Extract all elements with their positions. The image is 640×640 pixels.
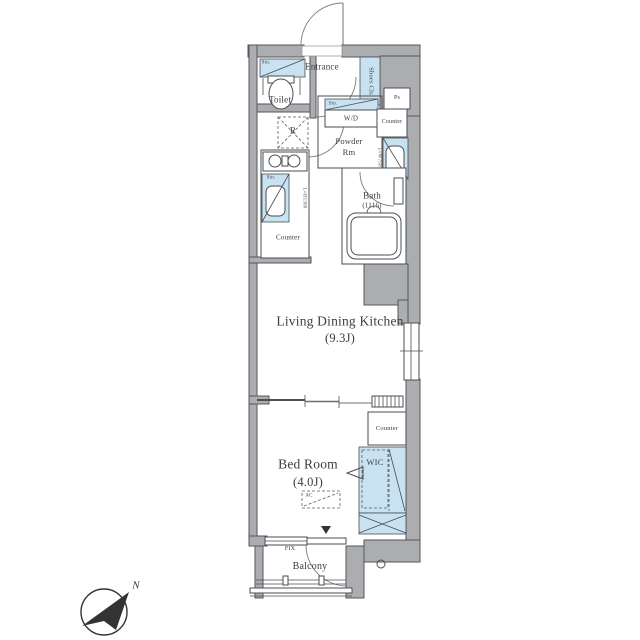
fix-window-label: FIX: [285, 546, 295, 552]
basin-dim-label: L=W750: [377, 147, 382, 166]
washer-storage-label: Sto.: [329, 102, 338, 107]
shoes-closet-label: Shoes Cls: [367, 67, 374, 95]
partition-sliding-door: [257, 395, 403, 408]
compass-north-label: N: [132, 581, 140, 592]
louver-panel: [372, 396, 403, 407]
powder-room-label-2: Rm: [343, 148, 356, 157]
entrance-label: Entrance: [305, 63, 339, 72]
washer-dryer-label: W/D: [344, 116, 358, 123]
refrigerator-label: R: [290, 127, 296, 136]
bath-unit: [342, 168, 406, 264]
compass-icon: [81, 589, 129, 635]
toilet-storage-label: Sto.: [262, 61, 271, 66]
ac-label: AC: [305, 494, 312, 499]
south-window: [265, 537, 346, 545]
bedroom-counter-label: Counter: [376, 426, 398, 433]
powder-room-label-1: Powder: [335, 137, 362, 146]
balcony-label: Balcony: [293, 562, 328, 572]
bedroom-label-1: Bed Room: [278, 457, 338, 471]
floorplan-page: Entrance Toilet Sto. Shoes Cls Sto. W/D …: [0, 0, 640, 640]
kitchen-counter-label: Counter: [276, 235, 300, 242]
powder-counter-label: Counter: [382, 119, 403, 125]
ldk-label-2: (9.3J): [325, 332, 355, 345]
sink-label: Sin.: [267, 176, 276, 181]
pipe-space-label: Ps: [394, 95, 400, 101]
door-marker-triangle: [321, 526, 331, 534]
toilet-label: Toilet: [269, 96, 291, 105]
balcony-railing: [250, 576, 352, 596]
kitchen-dim-label: L=H1300: [302, 188, 307, 209]
bath-label: Bath: [363, 192, 381, 201]
wic-label: WIC: [366, 458, 383, 467]
bedroom-label-2: (4.0J): [293, 476, 323, 489]
bath-size-label: (1116): [362, 203, 381, 210]
ldk-window: [400, 323, 423, 380]
ldk-label-1: Living Dining Kitchen: [276, 314, 403, 328]
entrance-door: [301, 3, 343, 56]
